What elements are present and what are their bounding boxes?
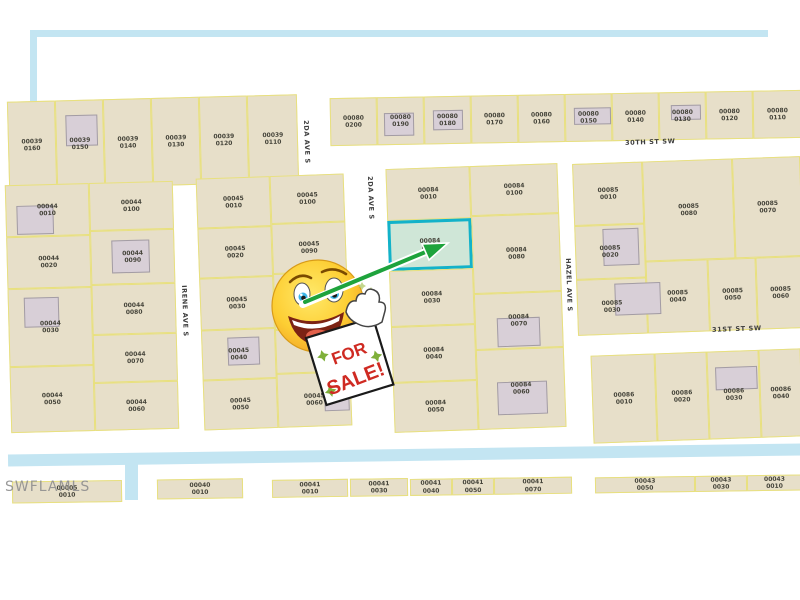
parcel: 00041 0040 [410, 478, 452, 496]
swflamls-watermark: SWFLAMLS [5, 479, 90, 495]
parcel-label: 00044 0080 [123, 301, 144, 317]
parcel: 00085 0010 [572, 162, 644, 226]
parcel-label: 00044 0100 [121, 198, 142, 214]
parcel-label: 00043 0050 [634, 477, 655, 492]
parcel-label: 00084 0060 [510, 381, 531, 397]
parcel: 00086 0030 [706, 350, 761, 440]
parcel: 00080 0160 [518, 94, 566, 143]
parcel: 00045 0010 [196, 176, 272, 229]
parcel: 00084 0010 [385, 166, 471, 221]
parcel-label: 00040 0010 [189, 481, 210, 496]
parcel: 00039 0140 [103, 98, 153, 187]
street-label: 2DA AVE S [302, 120, 312, 164]
parcel-label: 00084 0010 [418, 186, 439, 202]
parcel-label: 00044 0090 [122, 249, 143, 265]
parcel-label: 00045 0040 [228, 346, 249, 362]
parcel: 00044 0020 [6, 235, 91, 289]
parcel: 00080 0140 [612, 92, 660, 141]
parcel-label: 00086 0030 [723, 387, 744, 403]
parcel-label: 00084 0080 [506, 246, 527, 262]
parcel-label: 00039 0160 [21, 137, 42, 153]
parcel: 00043 0050 [595, 476, 695, 493]
canal [30, 30, 768, 37]
parcel-label: 00039 0150 [69, 136, 90, 152]
parcel: 00085 0050 [707, 258, 757, 332]
parcel-label: 00086 0040 [770, 385, 791, 401]
parcel: 00043 0030 [695, 475, 747, 492]
parcel-label: 00085 0080 [678, 202, 699, 218]
parcel: 00085 0080 [642, 158, 735, 261]
parcel: 00039 0160 [7, 101, 57, 190]
parcel: 00086 0020 [654, 352, 709, 442]
parcel: 00084 0070 [474, 291, 564, 350]
parcel-label: 00039 0120 [213, 132, 234, 148]
parcel: 00044 0080 [91, 283, 176, 335]
parcel-label: 00043 0010 [764, 475, 785, 490]
parcel: 00085 0070 [732, 156, 800, 258]
parcel-label: 00080 0150 [578, 110, 599, 125]
parcel-label: 00080 0110 [767, 107, 788, 122]
parcel: 00044 0070 [93, 333, 178, 383]
parcel: 00080 0190 [377, 96, 425, 145]
block-00044: 00044 001000044 002000044 003000044 0050… [5, 181, 179, 433]
parcel: 00080 0120 [706, 91, 754, 140]
block-00080: 00080 020000080 019000080 018000080 0170… [330, 90, 800, 146]
parcel-label: 00086 0020 [671, 389, 692, 405]
street-label: HAZEL AVE S [564, 258, 574, 312]
parcel: 00039 0130 [151, 97, 201, 186]
parcel-label: 00044 0060 [126, 398, 147, 414]
parcel-label: 00080 0140 [625, 109, 646, 124]
parcel: 00086 0040 [758, 348, 800, 437]
parcel: 00084 0080 [471, 213, 562, 294]
parcel-label: 00080 0170 [484, 112, 505, 127]
parcel-label: 00045 0100 [297, 191, 318, 207]
parcel-label: 00041 0070 [522, 478, 543, 493]
parcel: 00080 0170 [471, 95, 519, 144]
parcel-label: 00085 0020 [599, 244, 620, 260]
parcel: 00040 0010 [157, 478, 243, 499]
parcel-label: 00045 0030 [226, 295, 247, 311]
parcel: 00085 0030 [576, 278, 648, 336]
parcel: 00080 0200 [330, 97, 378, 146]
parcel-label: 00080 0180 [437, 112, 458, 127]
parcel: 00044 0090 [90, 229, 175, 285]
parcel: 00045 0100 [270, 173, 346, 224]
parcel: 00080 0180 [424, 96, 472, 145]
parcel-label: 00084 0100 [504, 182, 525, 198]
parcel: 00044 0010 [5, 183, 90, 237]
parcel-label: 00080 0200 [343, 114, 364, 129]
parcel-label: 00039 0140 [117, 135, 138, 151]
parcel: 00039 0150 [55, 99, 105, 188]
parcel: 00085 0060 [755, 256, 800, 330]
parcel: 00041 0030 [350, 478, 408, 497]
parcel: 00041 0070 [494, 477, 572, 495]
parcel-label: 00041 0010 [299, 481, 320, 496]
parcel-label: 00041 0050 [462, 479, 483, 494]
street-label: 2DA AVE S [366, 176, 376, 220]
parcel: 00080 0150 [565, 93, 613, 142]
parcel-label: 00044 0050 [42, 391, 63, 407]
parcel-label: 00080 0120 [719, 107, 740, 122]
parcel-label: 00044 0020 [38, 254, 59, 270]
parcel-label: 00043 0030 [710, 476, 731, 491]
street-label: 30TH ST SW [625, 137, 676, 147]
for-sale-overlay: FOR SALE! [250, 228, 460, 413]
parcel-label: 00041 0040 [420, 480, 441, 495]
parcel-label: 00085 0070 [757, 199, 778, 215]
parcel-label: 00086 0010 [613, 391, 634, 407]
parcel: 00044 0050 [10, 365, 96, 433]
parcel: 00041 0010 [272, 479, 348, 498]
parcel: 00043 0010 [747, 474, 800, 491]
parcel: 00086 0010 [591, 353, 658, 443]
parcel-label: 00039 0110 [262, 131, 283, 147]
parcel: 00039 0120 [199, 96, 249, 185]
parcel-label: 00044 0070 [125, 350, 146, 366]
parcel-label: 00085 0040 [667, 289, 688, 305]
parcel-label: 00080 0190 [390, 113, 411, 128]
parcel-label: 00045 0010 [223, 194, 244, 210]
block-00086: 00086 001000086 002000086 003000086 0040 [591, 348, 800, 443]
parcel: 00044 0100 [89, 181, 174, 231]
parcel-label: 00041 0030 [368, 480, 389, 495]
parcel: 00044 0060 [94, 381, 179, 431]
parcel-label: 00080 0130 [672, 108, 693, 123]
street-label: IRENE AVE S [180, 285, 190, 337]
block-00085: 00085 001000085 002000085 003000085 0080… [572, 156, 800, 336]
parcel-label: 00044 0030 [40, 319, 61, 335]
parcel-label: 00080 0160 [531, 111, 552, 126]
parcel: 00084 0100 [469, 163, 559, 216]
parcel-label: 00084 0070 [508, 313, 529, 329]
parcel: 00044 0030 [8, 287, 94, 367]
street-label: 31ST ST SW [712, 324, 762, 334]
parcel: 00080 0130 [659, 92, 707, 141]
parcel: 00039 0110 [247, 94, 299, 183]
parcel-label: 00039 0130 [165, 134, 186, 150]
parcel-label: 00085 0010 [597, 186, 618, 202]
parcel-label: 00085 0060 [770, 285, 791, 301]
parcel-label: 00085 0050 [722, 287, 743, 303]
parcel-label: 00045 0050 [230, 396, 251, 412]
parcel: 00041 0050 [452, 478, 494, 496]
parcel-label: 00085 0030 [601, 299, 622, 315]
parcel: 00084 0060 [476, 347, 567, 430]
parcel-label: 00045 0020 [225, 244, 246, 260]
parcel: 00080 0110 [753, 90, 800, 139]
parcel: 00085 0020 [574, 224, 646, 280]
parcel-label: 00044 0010 [37, 202, 58, 218]
